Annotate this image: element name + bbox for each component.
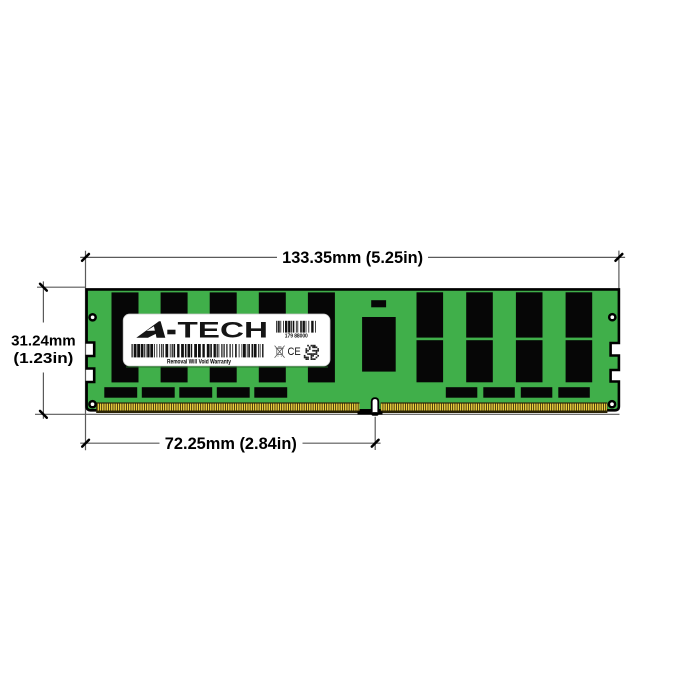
svg-text:179 88000: 179 88000	[285, 334, 308, 340]
svg-text:Removal Will Void Warranty: Removal Will Void Warranty	[167, 358, 231, 365]
svg-text:CE: CE	[288, 346, 301, 358]
svg-text:(1.23in): (1.23in)	[13, 350, 73, 367]
svg-text:133.35mm (5.25in): 133.35mm (5.25in)	[282, 248, 423, 267]
svg-text:TECH: TECH	[178, 318, 269, 343]
svg-text:31.24mm: 31.24mm	[11, 333, 76, 350]
svg-text:72.25mm (2.84in): 72.25mm (2.84in)	[165, 434, 297, 453]
